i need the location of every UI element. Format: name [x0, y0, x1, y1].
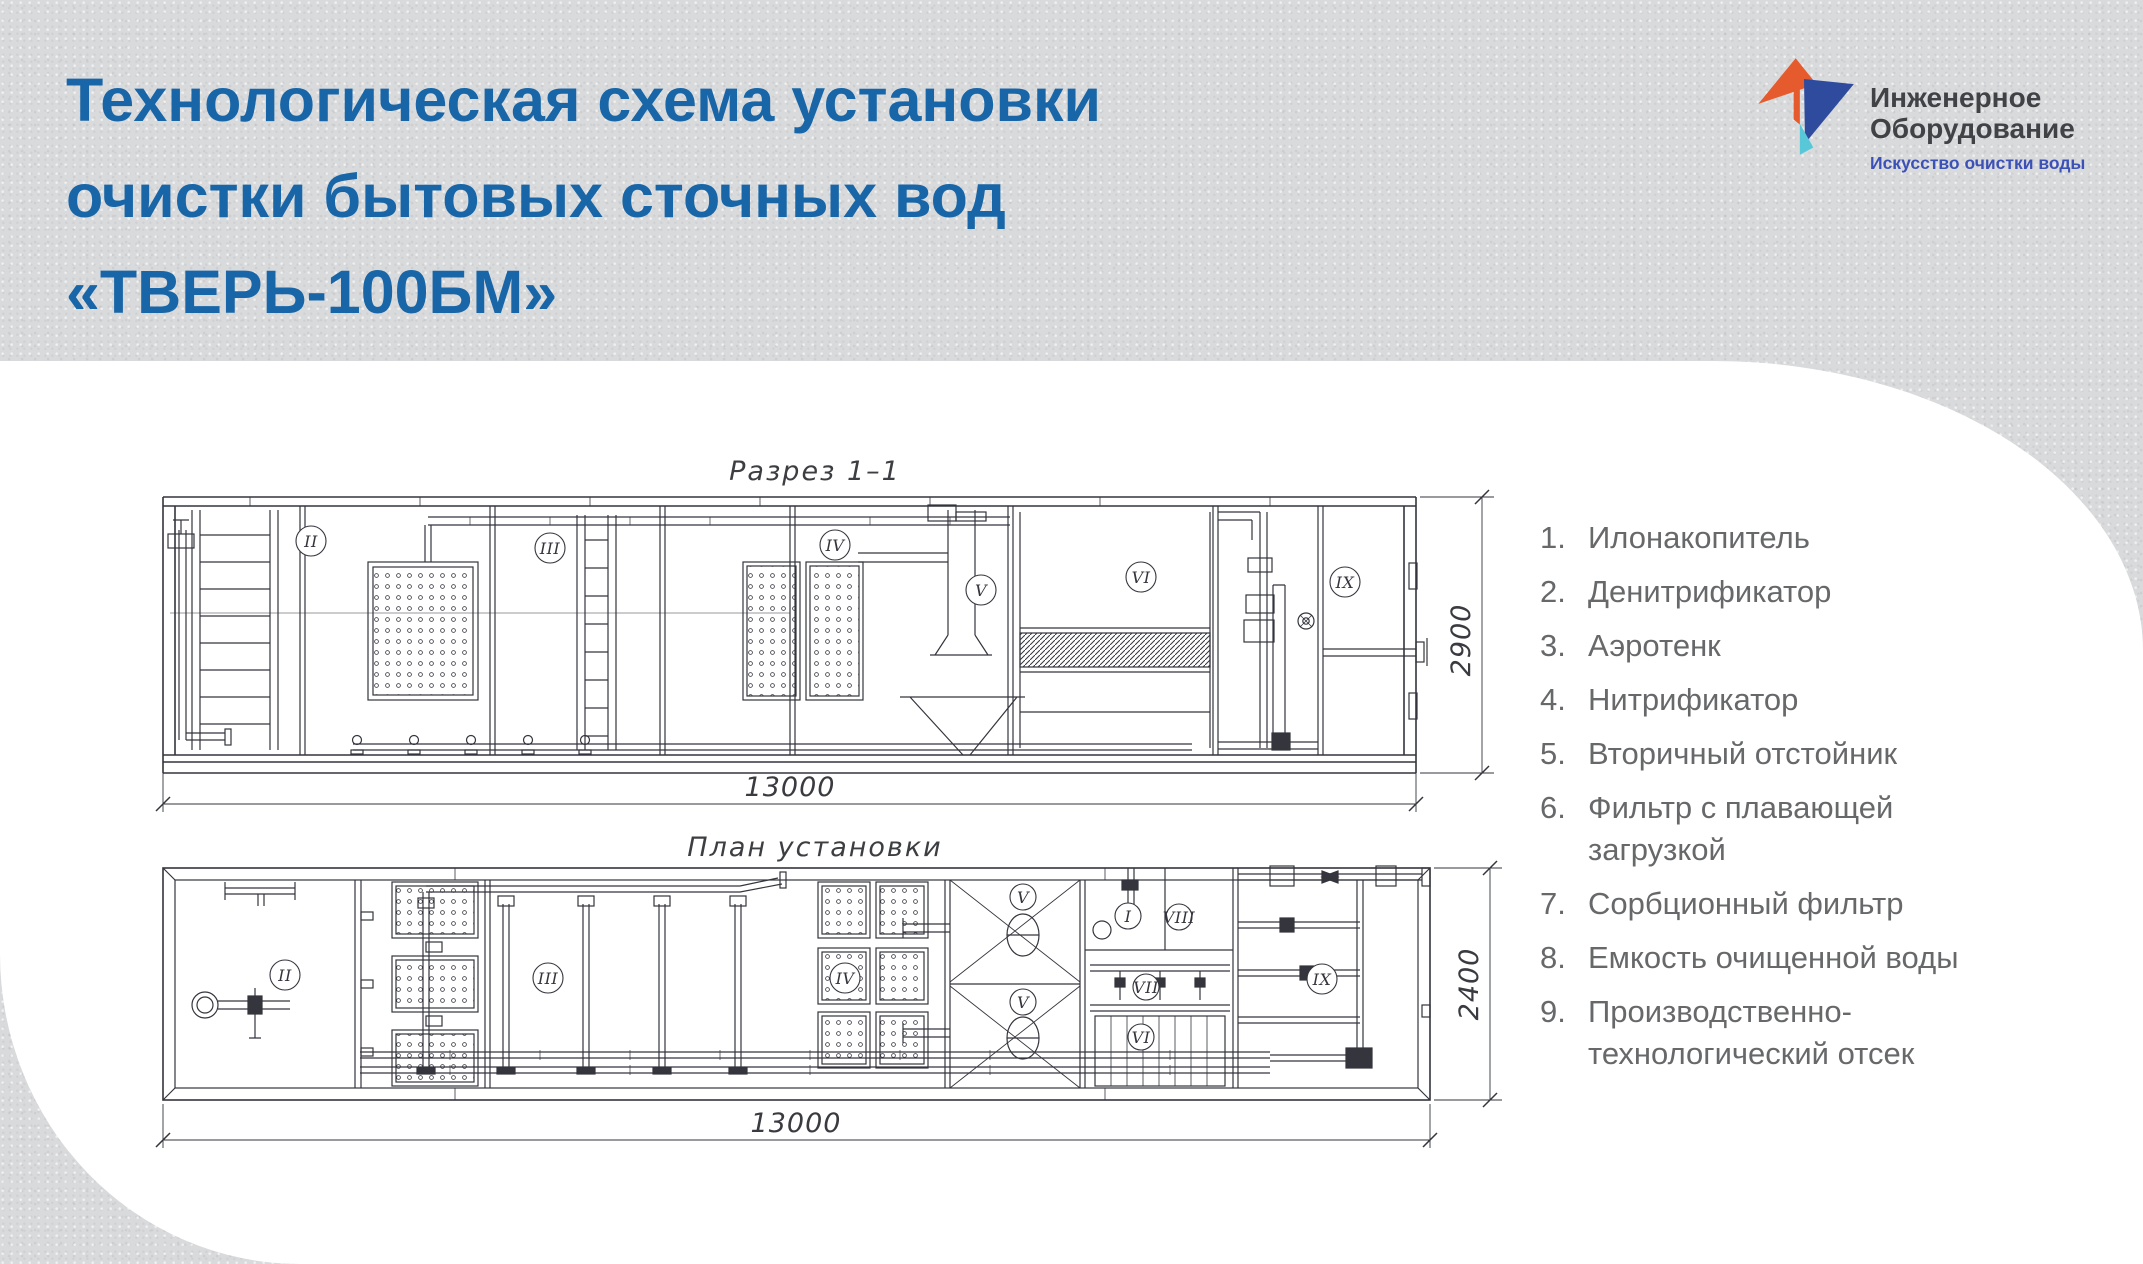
legend-number: 3. — [1540, 625, 1588, 667]
legend-text: Денитрификатор — [1588, 571, 1976, 613]
legend-item: 3. Аэротенк — [1540, 625, 1976, 667]
section-label: IX — [1312, 970, 1332, 989]
section-label: I — [1124, 907, 1132, 926]
section-label: V — [1017, 993, 1030, 1012]
legend-number: 5. — [1540, 733, 1588, 775]
legend-item: 7. Сорбционный фильтр — [1540, 883, 1976, 925]
section-label: II — [303, 532, 318, 551]
title-line-1: Технологическая схема установки — [66, 52, 1466, 148]
section-label: V — [1017, 888, 1030, 907]
section-label: IV — [835, 969, 856, 988]
legend-item: 8. Емкость очищенной воды — [1540, 937, 1976, 979]
page-title: Технологическая схема установки очистки … — [66, 52, 1466, 340]
logo-name-line-2: Оборудование — [1870, 113, 2085, 144]
logo-name-line-1: Инженерное — [1870, 82, 2085, 113]
section-label: IX — [1335, 573, 1355, 592]
logo-pinwheel-icon — [1752, 52, 1856, 162]
legend-text: Илонакопитель — [1588, 517, 1976, 559]
section-label: VI — [1132, 1028, 1151, 1047]
legend-item: 5. Вторичный отстойник — [1540, 733, 1976, 775]
cross-section-drawing: Разрез 1–1 — [130, 450, 1540, 835]
legend-text: Вторичный отстойник — [1588, 733, 1976, 775]
legend-number: 1. — [1540, 517, 1588, 559]
legend-number: 8. — [1540, 937, 1588, 979]
legend-item: 6. Фильтр с плавающей загрузкой — [1540, 787, 1976, 871]
section-label: III — [539, 539, 561, 558]
slide: Технологическая схема установки очистки … — [0, 0, 2143, 1264]
legend-number: 2. — [1540, 571, 1588, 613]
company-logo: Инженерное Оборудование Искусство очистк… — [1752, 52, 2085, 174]
cross-section-caption: Разрез 1–1 — [729, 456, 901, 487]
legend-list: 1. Илонакопитель 2. Денитрификатор 3. Аэ… — [1540, 517, 1976, 1087]
section-label: VII — [1133, 978, 1159, 997]
legend-text: Сорбционный фильтр — [1588, 883, 1976, 925]
plan-width-dim: 2400 — [1454, 948, 1485, 1021]
plan-drawing: План установки — [130, 820, 1540, 1180]
legend-item: 2. Денитрификатор — [1540, 571, 1976, 613]
section-label: II — [277, 966, 292, 985]
logo-tagline: Искусство очистки воды — [1870, 153, 2085, 174]
legend-item: 1. Илонакопитель — [1540, 517, 1976, 559]
plan-caption: План установки — [687, 832, 942, 863]
legend-number: 4. — [1540, 679, 1588, 721]
legend-number: 6. — [1540, 787, 1588, 871]
legend-number: 9. — [1540, 991, 1588, 1075]
plan-length-dim: 13000 — [751, 1108, 842, 1139]
legend-text: Нитрификатор — [1588, 679, 1976, 721]
title-line-3: «ТВЕРЬ-100БМ» — [66, 244, 1466, 340]
legend-text: Производственно-технологический отсек — [1588, 991, 1976, 1075]
section-label: III — [537, 969, 559, 988]
section-label: V — [975, 581, 988, 600]
cross-section-length-dim: 13000 — [745, 772, 836, 803]
section-label: VI — [1132, 568, 1151, 587]
legend-item: 4. Нитрификатор — [1540, 679, 1976, 721]
legend-text: Емкость очищенной воды — [1588, 937, 1976, 979]
logo-text: Инженерное Оборудование Искусство очистк… — [1870, 52, 2085, 174]
cross-section-height-dim: 2900 — [1446, 604, 1477, 677]
section-label: IV — [825, 536, 846, 555]
legend-text: Аэротенк — [1588, 625, 1976, 667]
plan-linework — [156, 861, 1502, 1148]
legend-text: Фильтр с плавающей загрузкой — [1588, 787, 1976, 871]
title-line-2: очистки бытовых сточных вод — [66, 148, 1466, 244]
legend-item: 9. Производственно-технологический отсек — [1540, 991, 1976, 1075]
legend-number: 7. — [1540, 883, 1588, 925]
section-label: VIII — [1163, 908, 1196, 927]
